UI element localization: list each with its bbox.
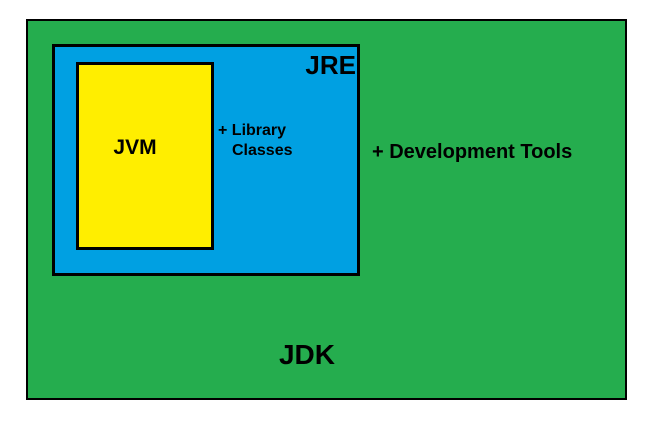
development-tools-label: + Development Tools: [372, 140, 572, 164]
jvm-label: JVM: [79, 137, 191, 158]
jvm-box: JVM: [76, 62, 214, 250]
library-classes-line2: Classes: [232, 141, 293, 161]
library-classes-label: + Library Classes: [218, 121, 293, 161]
jre-box: JVM + Library Classes JRE: [52, 44, 360, 276]
jdk-label: JDK: [207, 341, 407, 369]
diagram-canvas: JVM + Library Classes JRE + Development …: [0, 0, 660, 423]
jdk-box: JVM + Library Classes JRE + Development …: [26, 19, 627, 400]
library-classes-line1: + Library: [218, 121, 293, 141]
jre-label: JRE: [305, 52, 356, 78]
